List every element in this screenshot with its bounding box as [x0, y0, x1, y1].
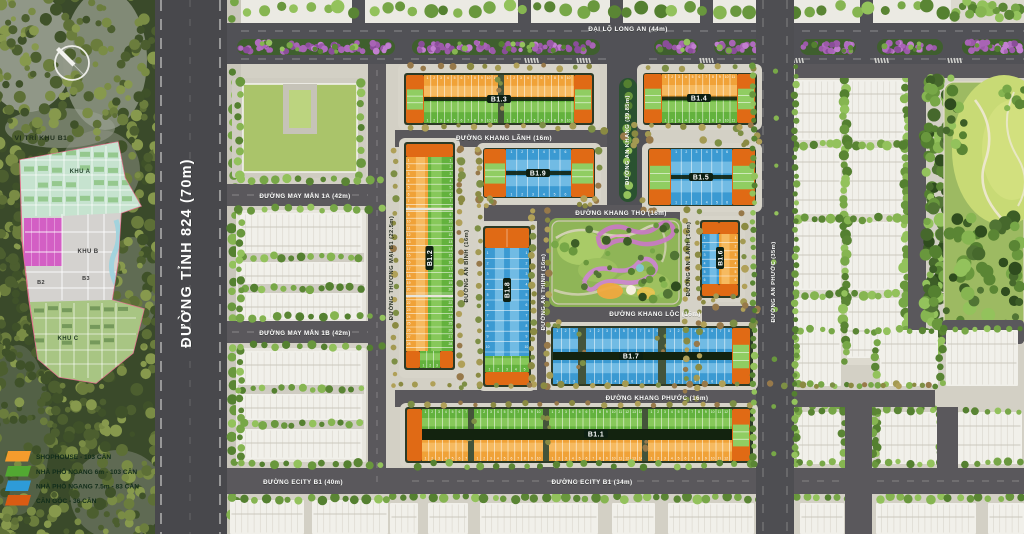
- svg-text:5: 5: [623, 329, 625, 333]
- svg-text:4: 4: [408, 179, 410, 183]
- svg-text:5: 5: [734, 270, 736, 274]
- svg-text:ĐƯỜNG MAY MẮN 1A (42m): ĐƯỜNG MAY MẮN 1A (42m): [259, 192, 350, 200]
- svg-text:28: 28: [449, 342, 453, 346]
- svg-text:1: 1: [506, 118, 508, 122]
- svg-text:2: 2: [565, 379, 567, 383]
- svg-text:14: 14: [407, 247, 411, 251]
- svg-text:B1.3: B1.3: [491, 96, 507, 103]
- svg-text:2: 2: [704, 245, 706, 249]
- svg-text:8: 8: [599, 410, 601, 414]
- svg-text:ĐƯỜNG KHANG LÃNH (16m): ĐƯỜNG KHANG LÃNH (16m): [456, 133, 552, 142]
- svg-text:4: 4: [685, 75, 687, 79]
- svg-text:KHU A: KHU A: [70, 169, 91, 175]
- svg-text:9: 9: [606, 410, 608, 414]
- svg-text:9: 9: [561, 118, 563, 122]
- svg-text:ĐƯỜNG KHANG PHƯỚC (16m): ĐƯỜNG KHANG PHƯỚC (16m): [606, 393, 709, 402]
- svg-text:1: 1: [488, 367, 490, 371]
- svg-text:B2: B2: [37, 280, 45, 286]
- svg-text:9: 9: [531, 456, 533, 460]
- svg-text:7: 7: [547, 118, 549, 122]
- svg-text:4: 4: [706, 150, 708, 154]
- svg-text:8: 8: [648, 379, 650, 383]
- svg-text:4: 4: [704, 261, 706, 265]
- svg-text:1: 1: [510, 192, 512, 196]
- svg-text:1: 1: [422, 363, 424, 367]
- svg-text:7: 7: [408, 199, 410, 203]
- svg-text:2: 2: [734, 245, 736, 249]
- svg-text:1: 1: [426, 76, 428, 80]
- svg-text:7: 7: [517, 456, 519, 460]
- svg-text:10: 10: [612, 456, 616, 460]
- svg-text:4: 4: [614, 329, 616, 333]
- svg-text:4: 4: [515, 367, 517, 371]
- svg-text:VỊ TRÍ KHU B1: VỊ TRÍ KHU B1: [15, 133, 68, 142]
- svg-text:4: 4: [497, 456, 499, 460]
- svg-text:3: 3: [438, 410, 440, 414]
- svg-text:1: 1: [426, 118, 428, 122]
- svg-text:B1.2: B1.2: [427, 250, 434, 266]
- svg-text:3: 3: [532, 150, 534, 154]
- svg-text:ĐƯỜNG KHANG LỘC (16m): ĐƯỜNG KHANG LỘC (16m): [609, 309, 700, 318]
- svg-text:8: 8: [712, 75, 714, 79]
- svg-text:17: 17: [449, 267, 453, 271]
- svg-text:3: 3: [565, 456, 567, 460]
- svg-text:5: 5: [716, 200, 718, 204]
- svg-text:B1.6: B1.6: [717, 250, 724, 266]
- svg-text:6: 6: [564, 150, 566, 154]
- svg-text:6: 6: [460, 118, 462, 122]
- svg-text:18: 18: [449, 274, 453, 278]
- svg-text:2: 2: [431, 410, 433, 414]
- svg-text:20: 20: [449, 288, 453, 292]
- svg-text:5: 5: [554, 192, 556, 196]
- svg-text:5: 5: [452, 410, 454, 414]
- svg-text:6: 6: [698, 118, 700, 122]
- svg-text:5: 5: [579, 456, 581, 460]
- svg-text:3: 3: [565, 410, 567, 414]
- svg-text:8: 8: [728, 329, 730, 333]
- svg-text:3: 3: [734, 253, 736, 257]
- svg-text:10: 10: [567, 118, 571, 122]
- svg-text:1: 1: [551, 410, 553, 414]
- svg-text:7: 7: [547, 76, 549, 80]
- svg-text:3: 3: [704, 253, 706, 257]
- svg-text:2: 2: [671, 75, 673, 79]
- svg-text:25: 25: [449, 322, 453, 326]
- svg-text:2: 2: [598, 329, 600, 333]
- svg-text:CĂN GÓC - 36 CĂN: CĂN GÓC - 36 CĂN: [36, 496, 97, 505]
- svg-text:4: 4: [445, 410, 447, 414]
- svg-text:7: 7: [465, 456, 467, 460]
- svg-text:2: 2: [685, 150, 687, 154]
- svg-text:1: 1: [664, 75, 666, 79]
- svg-text:4: 4: [572, 410, 574, 414]
- svg-text:10: 10: [486, 345, 490, 349]
- svg-text:10: 10: [725, 118, 729, 122]
- svg-text:4: 4: [734, 261, 736, 265]
- svg-text:5: 5: [408, 186, 410, 190]
- svg-text:26: 26: [407, 328, 411, 332]
- svg-text:6: 6: [540, 118, 542, 122]
- svg-text:3: 3: [678, 118, 680, 122]
- svg-text:ĐƯỜNG AN PHƯỚC (35m): ĐƯỜNG AN PHƯỚC (35m): [769, 241, 777, 322]
- svg-text:ĐƯỜNG ECITY B1 (34m): ĐƯỜNG ECITY B1 (34m): [551, 477, 632, 486]
- svg-text:2: 2: [671, 118, 673, 122]
- svg-text:11: 11: [619, 410, 623, 414]
- svg-text:6: 6: [585, 410, 587, 414]
- svg-text:6: 6: [698, 75, 700, 79]
- svg-text:2: 2: [483, 456, 485, 460]
- svg-text:11: 11: [732, 75, 736, 79]
- svg-text:15: 15: [449, 254, 453, 258]
- svg-text:4: 4: [525, 282, 527, 286]
- svg-text:6: 6: [711, 379, 713, 383]
- svg-text:2: 2: [497, 367, 499, 371]
- svg-text:24: 24: [407, 315, 411, 319]
- svg-text:5: 5: [525, 293, 527, 297]
- svg-text:1: 1: [476, 456, 478, 460]
- svg-text:3: 3: [506, 367, 508, 371]
- svg-text:4: 4: [447, 76, 449, 80]
- svg-text:4: 4: [445, 456, 447, 460]
- svg-text:1: 1: [669, 329, 671, 333]
- svg-text:10: 10: [537, 410, 541, 414]
- svg-text:8: 8: [698, 410, 700, 414]
- svg-text:5: 5: [579, 410, 581, 414]
- svg-text:2: 2: [565, 329, 567, 333]
- svg-text:2: 2: [525, 262, 527, 266]
- svg-text:ĐƯỜNG THƯƠNG MẠI B1 (22.5m): ĐƯỜNG THƯƠNG MẠI B1 (22.5m): [387, 216, 395, 320]
- svg-text:1: 1: [525, 251, 527, 255]
- svg-text:9: 9: [561, 76, 563, 80]
- svg-text:4: 4: [497, 410, 499, 414]
- svg-text:2: 2: [685, 200, 687, 204]
- svg-text:4: 4: [671, 410, 673, 414]
- svg-text:ĐƯỜNG MAY MẮN 1B (42m): ĐƯỜNG MAY MẮN 1B (42m): [259, 329, 350, 337]
- svg-text:5: 5: [692, 75, 694, 79]
- svg-text:ĐẠI LỘ LONG AN (44m): ĐẠI LỘ LONG AN (44m): [588, 24, 667, 33]
- svg-text:2: 2: [678, 329, 680, 333]
- svg-text:6: 6: [711, 329, 713, 333]
- svg-text:7: 7: [720, 329, 722, 333]
- svg-text:B1.9: B1.9: [530, 170, 546, 177]
- svg-text:9: 9: [408, 213, 410, 217]
- svg-text:6: 6: [510, 456, 512, 460]
- svg-text:6: 6: [684, 456, 686, 460]
- svg-text:10: 10: [407, 220, 411, 224]
- svg-text:4: 4: [671, 456, 673, 460]
- svg-text:3: 3: [606, 329, 608, 333]
- svg-text:8: 8: [728, 379, 730, 383]
- svg-text:2: 2: [408, 165, 410, 169]
- svg-text:18: 18: [407, 274, 411, 278]
- svg-text:5: 5: [487, 293, 489, 297]
- svg-text:B3: B3: [82, 276, 90, 282]
- svg-text:6: 6: [704, 278, 706, 282]
- svg-text:2: 2: [558, 410, 560, 414]
- svg-text:9: 9: [481, 118, 483, 122]
- svg-text:7: 7: [465, 410, 467, 414]
- svg-text:6: 6: [458, 410, 460, 414]
- svg-text:2: 2: [487, 262, 489, 266]
- svg-text:27: 27: [407, 335, 411, 339]
- svg-text:8: 8: [712, 118, 714, 122]
- svg-text:1: 1: [650, 410, 652, 414]
- svg-text:3: 3: [520, 76, 522, 80]
- svg-text:4: 4: [572, 456, 574, 460]
- svg-text:20: 20: [407, 288, 411, 292]
- svg-text:4: 4: [543, 150, 545, 154]
- svg-text:14: 14: [449, 247, 453, 251]
- svg-text:3: 3: [696, 150, 698, 154]
- svg-text:8: 8: [524, 456, 526, 460]
- svg-text:B1.1: B1.1: [588, 431, 604, 438]
- svg-text:3: 3: [490, 456, 492, 460]
- svg-text:6: 6: [631, 379, 633, 383]
- svg-text:6: 6: [487, 303, 489, 307]
- svg-text:8: 8: [525, 324, 527, 328]
- svg-text:7: 7: [640, 379, 642, 383]
- svg-text:8: 8: [698, 456, 700, 460]
- svg-text:3: 3: [573, 329, 575, 333]
- svg-text:3: 3: [664, 410, 666, 414]
- svg-text:3: 3: [490, 410, 492, 414]
- svg-text:26: 26: [449, 328, 453, 332]
- svg-text:5: 5: [678, 410, 680, 414]
- svg-text:3: 3: [664, 456, 666, 460]
- svg-text:23: 23: [449, 308, 453, 312]
- svg-text:5: 5: [703, 329, 705, 333]
- svg-text:1: 1: [650, 456, 652, 460]
- svg-text:15: 15: [407, 254, 411, 258]
- svg-text:ĐƯỜNG TỈNH 824 (70m): ĐƯỜNG TỈNH 824 (70m): [177, 158, 195, 347]
- svg-text:17: 17: [407, 267, 411, 271]
- svg-text:2: 2: [513, 118, 515, 122]
- svg-text:10: 10: [612, 410, 616, 414]
- svg-text:11: 11: [718, 410, 722, 414]
- svg-text:9: 9: [487, 334, 489, 338]
- svg-text:6: 6: [408, 192, 410, 196]
- svg-text:5: 5: [524, 367, 526, 371]
- svg-text:ĐƯỜNG AN LÀNH (16m): ĐƯỜNG AN LÀNH (16m): [684, 222, 692, 297]
- svg-text:10: 10: [711, 410, 715, 414]
- svg-text:3: 3: [408, 172, 410, 176]
- svg-text:5: 5: [452, 456, 454, 460]
- svg-text:8: 8: [524, 410, 526, 414]
- svg-text:B1.4: B1.4: [691, 95, 707, 102]
- svg-text:SHOPHOUSE - 103 CĂN: SHOPHOUSE - 103 CĂN: [36, 452, 111, 461]
- svg-text:12: 12: [625, 456, 629, 460]
- svg-text:5: 5: [449, 186, 451, 190]
- svg-text:12: 12: [449, 233, 453, 237]
- svg-text:3: 3: [449, 172, 451, 176]
- svg-text:1: 1: [589, 379, 591, 383]
- svg-text:7: 7: [467, 118, 469, 122]
- svg-text:10: 10: [725, 75, 729, 79]
- svg-text:12: 12: [625, 410, 629, 414]
- svg-text:12: 12: [724, 456, 728, 460]
- svg-text:5: 5: [504, 410, 506, 414]
- svg-text:7: 7: [525, 314, 527, 318]
- svg-text:5: 5: [534, 76, 536, 80]
- svg-text:4: 4: [447, 118, 449, 122]
- svg-text:6: 6: [726, 200, 728, 204]
- svg-text:23: 23: [407, 308, 411, 312]
- svg-text:2: 2: [657, 410, 659, 414]
- svg-text:10: 10: [711, 456, 715, 460]
- svg-text:13: 13: [632, 410, 636, 414]
- svg-text:1: 1: [669, 379, 671, 383]
- svg-text:1: 1: [424, 456, 426, 460]
- svg-text:2: 2: [598, 379, 600, 383]
- svg-text:7: 7: [705, 118, 707, 122]
- svg-text:10: 10: [487, 118, 491, 122]
- svg-text:16: 16: [449, 260, 453, 264]
- svg-text:6: 6: [585, 456, 587, 460]
- svg-text:2: 2: [657, 456, 659, 460]
- svg-text:9: 9: [705, 456, 707, 460]
- svg-text:3: 3: [696, 200, 698, 204]
- svg-text:9: 9: [705, 410, 707, 414]
- svg-text:6: 6: [460, 76, 462, 80]
- svg-text:5: 5: [504, 456, 506, 460]
- svg-text:5: 5: [692, 118, 694, 122]
- svg-text:KHU C: KHU C: [58, 336, 79, 342]
- svg-text:ĐƯỜNG AN KHANG (39.85m): ĐƯỜNG AN KHANG (39.85m): [623, 95, 631, 185]
- svg-text:8: 8: [474, 76, 476, 80]
- svg-text:2: 2: [521, 150, 523, 154]
- svg-text:4: 4: [614, 379, 616, 383]
- svg-text:6: 6: [631, 329, 633, 333]
- svg-text:22: 22: [449, 301, 453, 305]
- svg-text:1: 1: [449, 158, 451, 162]
- svg-text:7: 7: [592, 456, 594, 460]
- svg-text:1: 1: [704, 236, 706, 240]
- svg-text:4: 4: [685, 118, 687, 122]
- svg-text:8: 8: [648, 329, 650, 333]
- svg-text:7: 7: [487, 314, 489, 318]
- svg-text:6: 6: [510, 410, 512, 414]
- svg-text:7: 7: [449, 199, 451, 203]
- svg-text:2: 2: [483, 410, 485, 414]
- svg-text:3: 3: [440, 118, 442, 122]
- svg-text:4: 4: [543, 192, 545, 196]
- svg-text:11: 11: [732, 118, 736, 122]
- svg-text:9: 9: [719, 75, 721, 79]
- svg-text:11: 11: [619, 456, 623, 460]
- svg-text:1: 1: [734, 236, 736, 240]
- svg-text:9: 9: [719, 118, 721, 122]
- svg-text:9: 9: [449, 213, 451, 217]
- svg-text:6: 6: [684, 410, 686, 414]
- svg-text:3: 3: [438, 456, 440, 460]
- svg-text:25: 25: [407, 322, 411, 326]
- svg-text:8: 8: [487, 324, 489, 328]
- svg-text:1: 1: [476, 410, 478, 414]
- svg-text:2: 2: [521, 192, 523, 196]
- svg-text:6: 6: [726, 150, 728, 154]
- svg-text:5: 5: [678, 456, 680, 460]
- svg-text:16: 16: [407, 260, 411, 264]
- svg-text:4: 4: [527, 76, 529, 80]
- svg-text:7: 7: [592, 410, 594, 414]
- svg-text:5: 5: [534, 118, 536, 122]
- svg-text:9: 9: [481, 76, 483, 80]
- svg-text:1: 1: [675, 200, 677, 204]
- svg-text:7: 7: [640, 329, 642, 333]
- svg-text:12: 12: [724, 410, 728, 414]
- svg-text:27: 27: [449, 335, 453, 339]
- svg-text:4: 4: [449, 179, 451, 183]
- svg-text:5: 5: [704, 270, 706, 274]
- svg-text:8: 8: [554, 76, 556, 80]
- svg-text:B1.8: B1.8: [504, 282, 511, 298]
- svg-text:1: 1: [556, 329, 558, 333]
- svg-text:6: 6: [525, 303, 527, 307]
- svg-text:3: 3: [487, 272, 489, 276]
- svg-text:11: 11: [407, 226, 411, 230]
- svg-text:10: 10: [525, 345, 529, 349]
- svg-text:3: 3: [532, 192, 534, 196]
- svg-text:5: 5: [454, 76, 456, 80]
- svg-text:ĐƯỜNG ECITY B1 (40m): ĐƯỜNG ECITY B1 (40m): [263, 478, 343, 486]
- svg-text:3: 3: [525, 272, 527, 276]
- svg-text:2: 2: [429, 363, 431, 367]
- svg-text:1: 1: [510, 150, 512, 154]
- svg-text:24: 24: [449, 315, 453, 319]
- svg-text:2: 2: [513, 76, 515, 80]
- svg-text:3: 3: [440, 76, 442, 80]
- svg-text:13: 13: [449, 240, 453, 244]
- svg-text:8: 8: [554, 118, 556, 122]
- svg-text:3: 3: [520, 118, 522, 122]
- svg-text:4: 4: [527, 118, 529, 122]
- svg-text:6: 6: [449, 192, 451, 196]
- svg-text:5: 5: [716, 150, 718, 154]
- svg-text:3: 3: [573, 379, 575, 383]
- svg-text:2: 2: [678, 379, 680, 383]
- svg-text:10: 10: [537, 456, 541, 460]
- svg-text:KHU B: KHU B: [78, 249, 99, 255]
- svg-text:2: 2: [449, 165, 451, 169]
- svg-text:13: 13: [407, 240, 411, 244]
- svg-text:B1.7: B1.7: [623, 353, 639, 360]
- svg-text:7: 7: [691, 410, 693, 414]
- svg-text:5: 5: [454, 118, 456, 122]
- svg-text:4: 4: [706, 200, 708, 204]
- svg-text:3: 3: [436, 363, 438, 367]
- svg-text:7: 7: [705, 75, 707, 79]
- svg-text:1: 1: [424, 410, 426, 414]
- svg-text:6: 6: [734, 278, 736, 282]
- svg-text:19: 19: [449, 281, 453, 285]
- svg-text:B1.5: B1.5: [693, 174, 709, 181]
- svg-text:1: 1: [506, 76, 508, 80]
- svg-text:19: 19: [407, 281, 411, 285]
- svg-text:5: 5: [554, 150, 556, 154]
- svg-text:28: 28: [407, 342, 411, 346]
- svg-text:1: 1: [589, 329, 591, 333]
- svg-text:9: 9: [531, 410, 533, 414]
- svg-text:2: 2: [558, 456, 560, 460]
- svg-text:3: 3: [678, 75, 680, 79]
- svg-text:8: 8: [474, 118, 476, 122]
- svg-text:2: 2: [433, 76, 435, 80]
- svg-text:1: 1: [664, 118, 666, 122]
- svg-text:22: 22: [407, 301, 411, 305]
- svg-text:2: 2: [433, 118, 435, 122]
- svg-text:12: 12: [407, 233, 411, 237]
